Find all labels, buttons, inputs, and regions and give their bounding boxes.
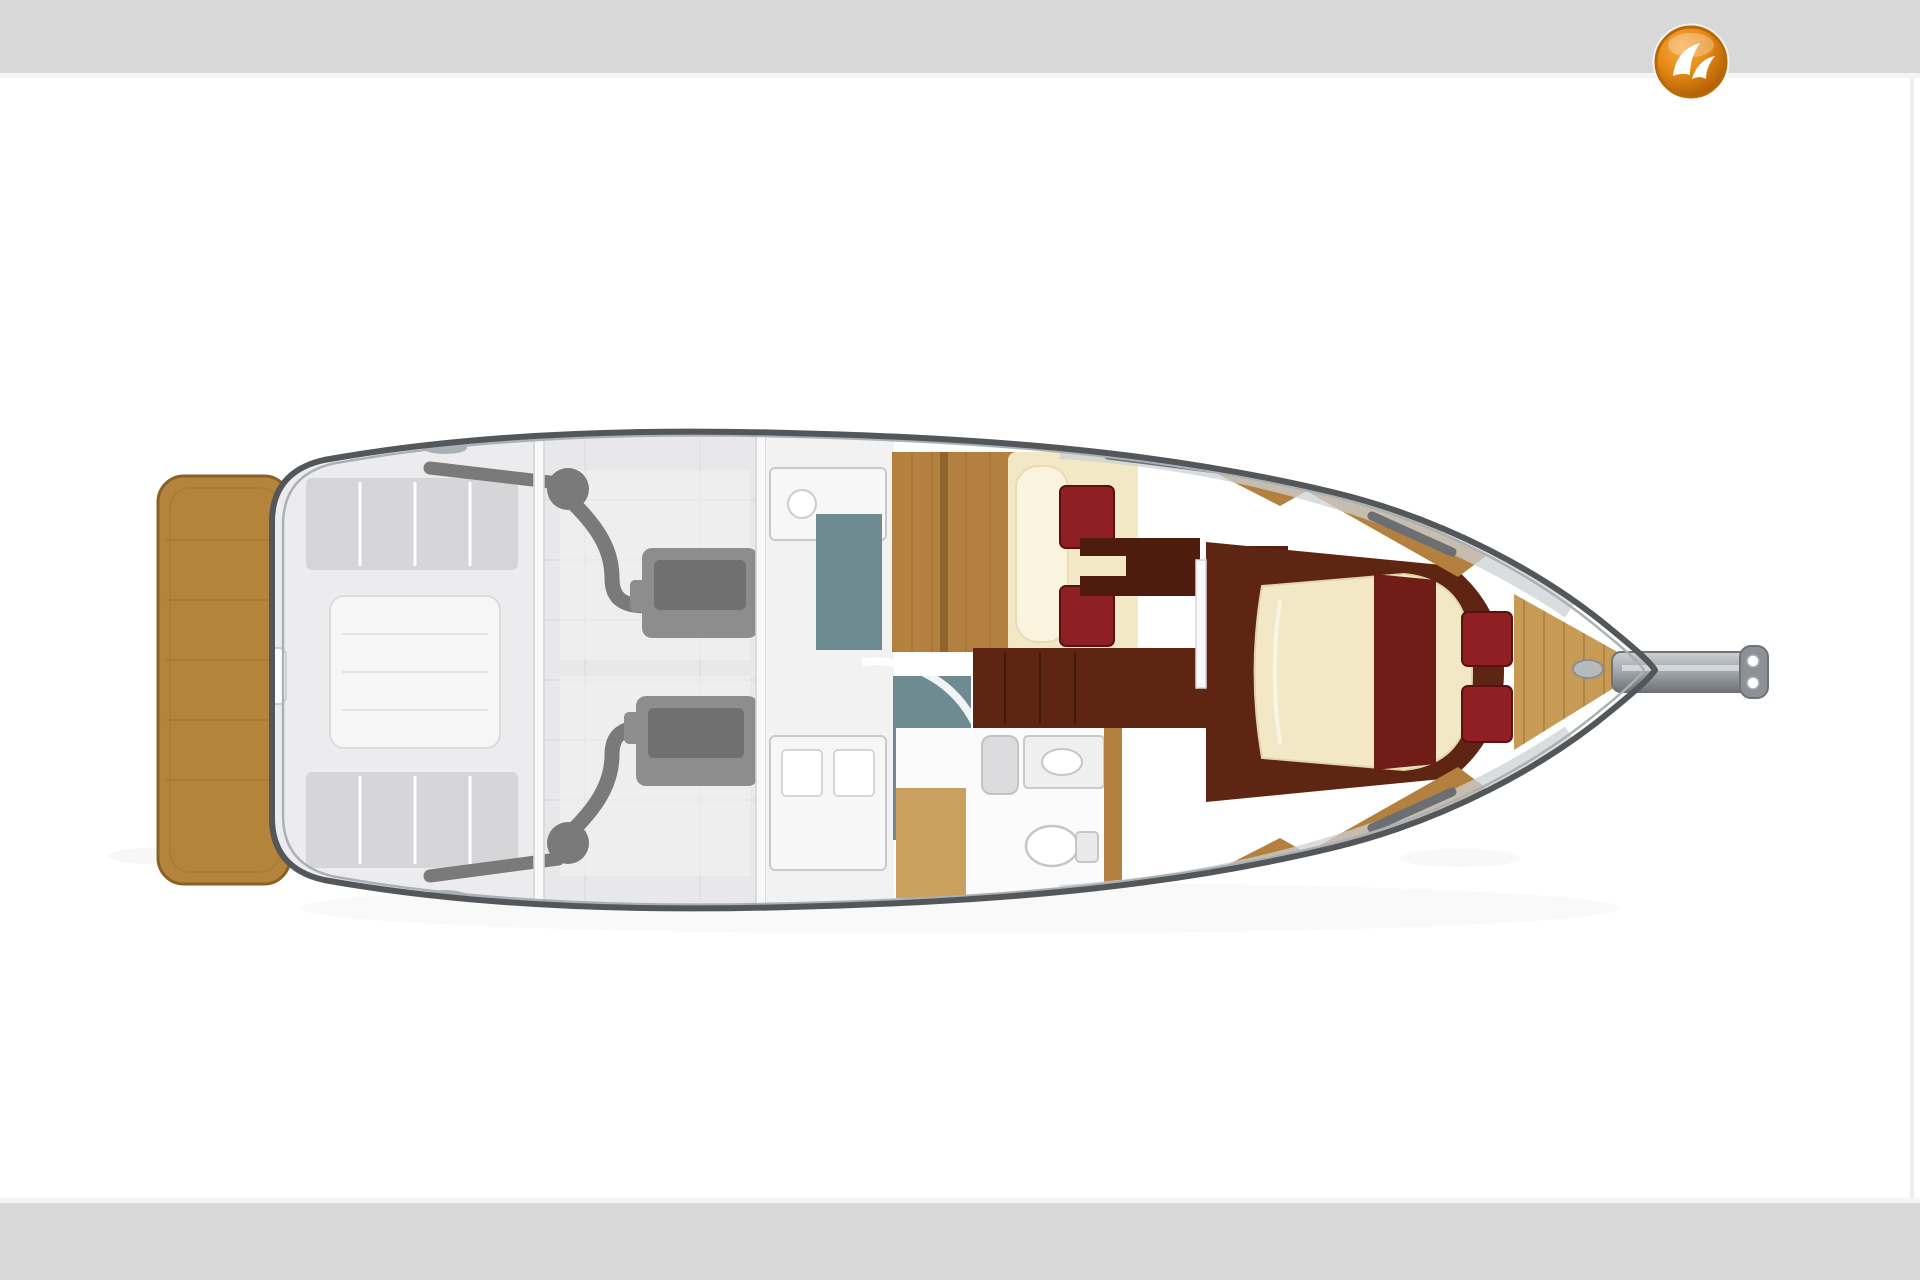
galley-stove xyxy=(782,750,822,796)
owner-cabin-door xyxy=(1196,560,1206,688)
engine-starboard xyxy=(624,696,758,786)
shadow-smudge xyxy=(1400,849,1520,867)
head-floor-wood xyxy=(896,788,966,898)
cockpit-bench-port xyxy=(306,478,518,570)
guest-cabin-floor xyxy=(892,452,1014,652)
windlass xyxy=(1573,660,1603,678)
toilet-tank xyxy=(1076,832,1098,862)
header-band xyxy=(0,0,1920,73)
engine-port xyxy=(630,548,758,638)
anchor-roller xyxy=(1740,646,1768,698)
galley xyxy=(766,432,894,906)
footer-band-edge xyxy=(0,1198,1920,1203)
footer-band xyxy=(0,1203,1920,1280)
bulkhead-aft xyxy=(534,440,544,902)
berth-runner xyxy=(1374,574,1436,770)
corridor-steps xyxy=(973,648,1209,728)
head-locker xyxy=(982,736,1018,794)
owner-island-berth xyxy=(1255,574,1473,770)
orange-bird-logo[interactable] xyxy=(1654,25,1728,99)
header-band-edge xyxy=(0,73,1920,78)
owner-cushion-lower xyxy=(1462,686,1512,742)
head-wood-trim xyxy=(1104,728,1122,898)
toilet xyxy=(1026,826,1078,866)
cockpit-bench-starboard xyxy=(306,772,518,868)
right-edge-line xyxy=(1910,78,1914,1198)
galley-teal-panel xyxy=(816,514,882,650)
owner-cushion-upper xyxy=(1462,612,1512,666)
galley-fridge xyxy=(834,750,874,796)
cockpit xyxy=(266,428,542,910)
page xyxy=(0,0,1920,1280)
bulkhead-mid xyxy=(756,436,766,904)
head-bathroom xyxy=(896,728,1122,898)
head-sink xyxy=(1042,749,1082,775)
galley-sink xyxy=(788,490,816,518)
